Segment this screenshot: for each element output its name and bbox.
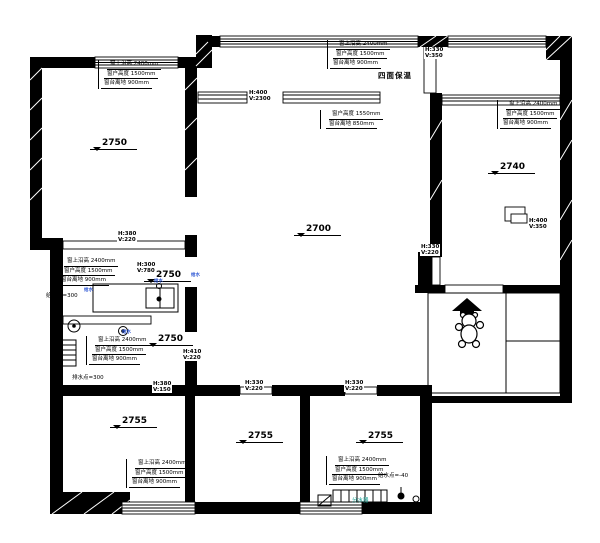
level-marker: 2755 [110, 416, 157, 428]
bear-figure-icon [456, 313, 484, 348]
window-annotation: 窗上沿高 2400mm窗户高度 1500mm窗台离地 900mm [326, 456, 389, 485]
beam-label: H:400V:350 [528, 218, 548, 230]
balcony-outline [428, 293, 560, 393]
window-annotation: 窗上沿高 2400mm窗户高度 1500mm窗台离地 900mm [126, 459, 189, 488]
beam-label: H:330V:220 [244, 380, 264, 392]
kitchen-sink-icon [93, 284, 178, 313]
beam-label: H:300V:780 [136, 262, 156, 274]
water-point-mark: 给水 [84, 288, 93, 293]
beam-label: H:380V:150 [152, 381, 172, 393]
beam-label: H:400V:2300 [248, 90, 272, 102]
level-marker: 2740 [488, 162, 535, 174]
level-marker: 2755 [356, 431, 403, 443]
drain-point-label: 排水点=300 [72, 375, 104, 381]
water-point-mark: 给水 [154, 279, 163, 284]
level-marker: 2750 [90, 138, 137, 150]
window-annotation: 窗上沿高 2400mm窗户高度 1500mm窗台离地 900mm [86, 336, 149, 365]
level-marker: 2755 [236, 431, 283, 443]
manifold-label: 分水器 [352, 498, 369, 504]
window-annotation: 窗上沿高 2400mm窗户高度 1500mm窗台离地 900mm [327, 40, 390, 69]
entry-arrow-icon [452, 298, 482, 315]
beam-label: H:330V:220 [420, 244, 440, 256]
beam-label: H:330V:350 [424, 47, 444, 59]
cad-floorplan: 2750 2700 2740 2750 2750 2755 2755 2755 … [0, 0, 600, 543]
beam-label: H:330V:220 [344, 380, 364, 392]
water-supply-label: 给水点=300 [46, 293, 78, 299]
water-point-mark: 给水 [122, 330, 131, 335]
window-annotation: 窗上沿高 2400mm窗户高度 1500mm窗台离地 900mm [55, 257, 118, 286]
level-marker: 2700 [294, 224, 341, 236]
water-supply-label: 给水点=-40 [378, 473, 408, 479]
beam-label: H:410V:220 [182, 349, 202, 361]
beam-label: H:380V:220 [117, 231, 137, 243]
window-annotation: 窗上沿高 2400mm窗户高度 1500mm窗台离地 900mm [98, 60, 161, 89]
level-marker: 2750 [146, 334, 193, 346]
beam-window-annotation: 窗户高度 1550mm窗台离地 850mm [320, 110, 383, 129]
insulation-note: 四面保温 [378, 70, 412, 81]
water-point-mark: 给水 [191, 273, 200, 278]
radiator-icon [62, 340, 76, 366]
window-annotation: 窗上沿高 2400mm窗户高度 1500mm窗台离地 900mm [497, 100, 560, 129]
